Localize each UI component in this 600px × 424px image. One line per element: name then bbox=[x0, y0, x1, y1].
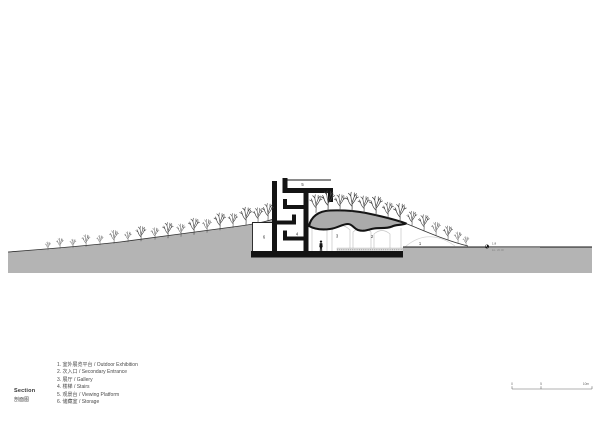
scale-bar: 0 5 10m bbox=[511, 382, 592, 389]
legend-item: 5. 观景台 / Viewing Platform bbox=[57, 392, 138, 399]
benchmark-value: 1.8 bbox=[492, 242, 497, 246]
section-title-zh: 剖面图 bbox=[14, 396, 35, 403]
paving-strip bbox=[337, 248, 403, 251]
legend-item: 6. 储藏室 / Storage bbox=[57, 399, 138, 406]
legend-item: 2. 次入口 / Secondary Entrance bbox=[57, 369, 138, 376]
section-drawing: 1 2 3 4 5 6 1.8 EL. 20.00 0 5 10m bbox=[0, 0, 600, 424]
scale-label-0: 0 bbox=[511, 382, 513, 386]
sheet: 1 2 3 4 5 6 1.8 EL. 20.00 0 5 10m bbox=[0, 0, 600, 424]
room-label-1: 1 bbox=[419, 241, 422, 246]
floor-slab bbox=[251, 251, 403, 258]
title-block: Section 剖面图 bbox=[14, 388, 35, 403]
legend: 1. 室外展览平台 / Outdoor Exhibition 2. 次入口 / … bbox=[57, 362, 138, 406]
section-title-en: Section bbox=[14, 388, 35, 394]
scale-label-5: 5 bbox=[540, 382, 542, 386]
scale-label-10m: 10m bbox=[583, 382, 590, 386]
legend-item: 4. 楼梯 / Stairs bbox=[57, 384, 138, 391]
benchmark-elevation: EL. 20.00 bbox=[492, 248, 504, 252]
